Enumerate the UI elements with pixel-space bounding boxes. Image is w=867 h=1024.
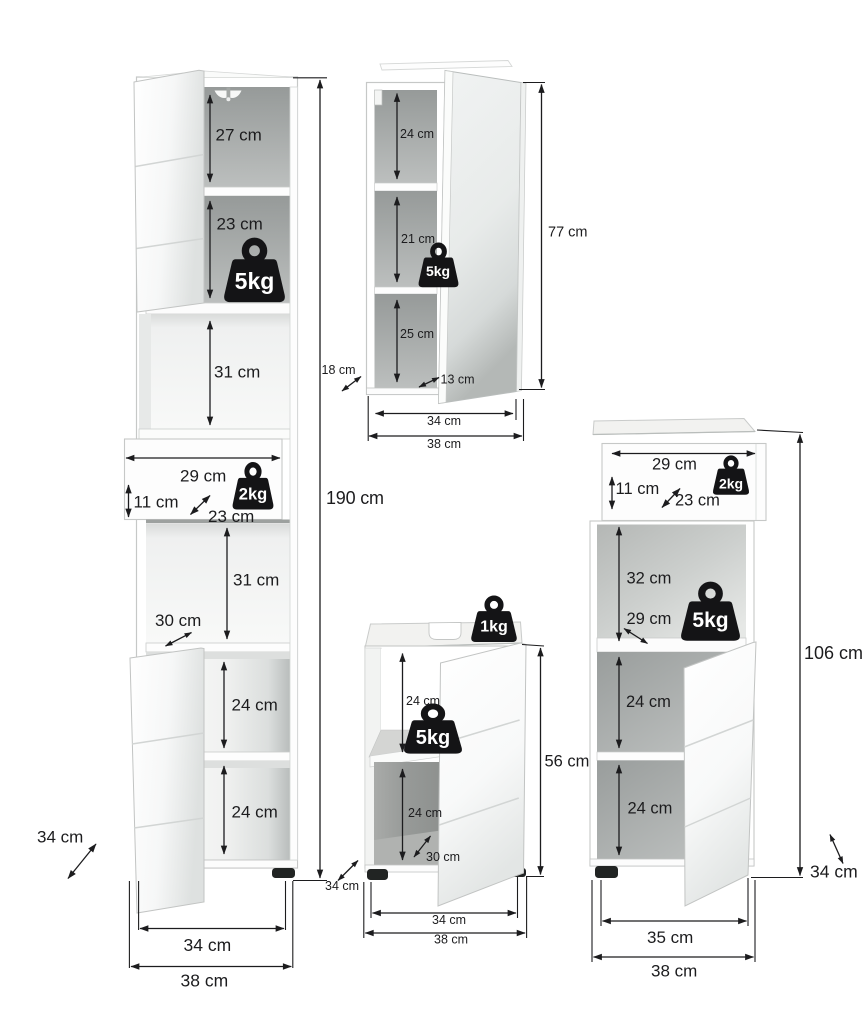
svg-text:29 cm: 29 cm	[180, 467, 226, 486]
svg-text:34 cm: 34 cm	[325, 879, 359, 893]
svg-text:27 cm: 27 cm	[216, 126, 262, 145]
svg-text:30 cm: 30 cm	[426, 850, 460, 864]
svg-text:5kg: 5kg	[235, 268, 275, 294]
svg-text:38 cm: 38 cm	[434, 933, 468, 947]
svg-text:34 cm: 34 cm	[432, 913, 466, 927]
svg-text:23 cm: 23 cm	[217, 215, 263, 234]
svg-text:35 cm: 35 cm	[647, 928, 693, 947]
svg-text:190 cm: 190 cm	[326, 488, 384, 508]
svg-text:23 cm: 23 cm	[675, 492, 720, 510]
svg-text:24 cm: 24 cm	[408, 806, 442, 820]
svg-text:5kg: 5kg	[426, 263, 450, 279]
svg-text:34 cm: 34 cm	[184, 935, 232, 955]
svg-text:56 cm: 56 cm	[545, 753, 590, 771]
svg-text:106 cm: 106 cm	[804, 643, 863, 663]
svg-text:24 cm: 24 cm	[626, 693, 671, 711]
svg-text:25 cm: 25 cm	[400, 327, 434, 341]
svg-text:2kg: 2kg	[719, 476, 743, 492]
svg-text:5kg: 5kg	[416, 727, 450, 749]
svg-text:5kg: 5kg	[692, 609, 728, 632]
svg-text:38 cm: 38 cm	[427, 437, 461, 451]
svg-text:2kg: 2kg	[239, 486, 267, 504]
svg-text:13 cm: 13 cm	[441, 373, 475, 387]
svg-text:11 cm: 11 cm	[134, 493, 179, 512]
svg-text:1kg: 1kg	[480, 619, 508, 636]
svg-text:77 cm: 77 cm	[548, 225, 588, 241]
svg-text:29 cm: 29 cm	[652, 456, 697, 474]
svg-text:24 cm: 24 cm	[232, 803, 278, 822]
svg-text:11 cm: 11 cm	[616, 480, 660, 498]
svg-text:34 cm: 34 cm	[427, 414, 461, 428]
svg-text:18 cm: 18 cm	[322, 363, 356, 377]
svg-text:21 cm: 21 cm	[401, 232, 435, 246]
svg-text:24 cm: 24 cm	[628, 800, 673, 818]
svg-text:29 cm: 29 cm	[627, 610, 672, 628]
svg-text:24 cm: 24 cm	[232, 696, 278, 715]
svg-text:23 cm: 23 cm	[208, 507, 254, 526]
svg-text:32 cm: 32 cm	[627, 570, 672, 588]
svg-text:34 cm: 34 cm	[810, 862, 858, 882]
svg-text:31 cm: 31 cm	[233, 571, 279, 590]
svg-text:34 cm: 34 cm	[37, 828, 83, 847]
svg-text:24 cm: 24 cm	[400, 127, 434, 141]
svg-text:38 cm: 38 cm	[181, 971, 229, 991]
svg-text:38 cm: 38 cm	[651, 962, 697, 981]
svg-text:31 cm: 31 cm	[214, 363, 260, 382]
svg-text:30 cm: 30 cm	[155, 611, 201, 630]
